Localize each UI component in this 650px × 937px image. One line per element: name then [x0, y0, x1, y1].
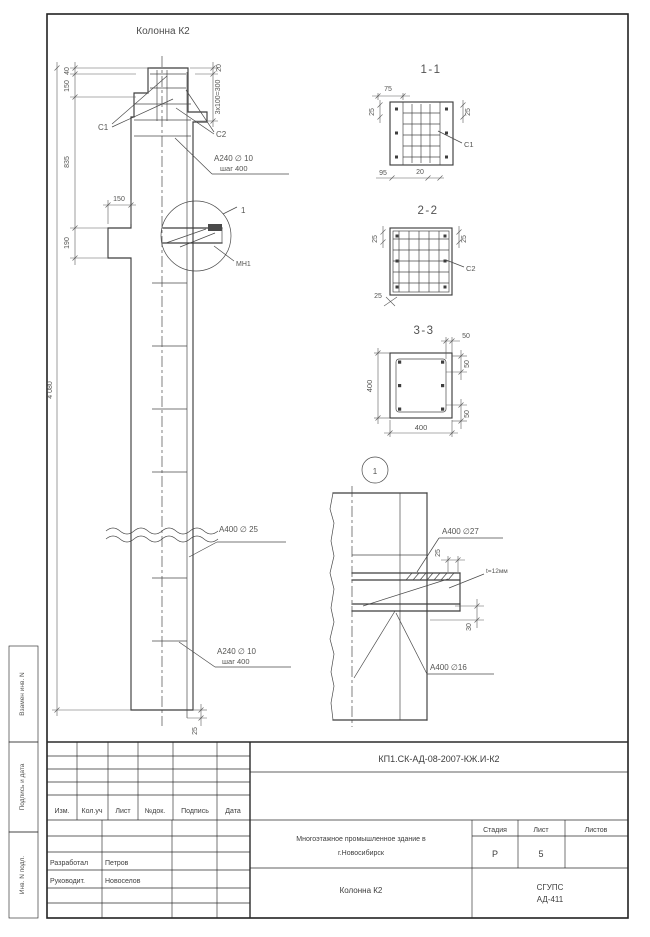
col-list: Лист	[115, 808, 131, 815]
dim-total: 4 080	[47, 381, 54, 399]
col-izm: Изм.	[55, 808, 70, 815]
dim-25b-22: 25	[374, 293, 382, 300]
column-outline	[108, 68, 207, 710]
dim-20: 20	[216, 64, 223, 72]
org-line1: СГУПС	[537, 883, 564, 892]
bottom-dim: 25	[187, 704, 207, 735]
dim-25r-11: 25	[465, 108, 472, 116]
rebar-head-label: А240 ∅ 10	[214, 154, 254, 163]
mesh-c2-label: С2	[466, 264, 476, 273]
dim-400b: 400	[415, 423, 428, 432]
dim-75: 75	[384, 86, 392, 93]
margin-label-replace-inv: Взамен инв. N	[19, 672, 26, 716]
title-block: Изм. Кол.уч Лист №док. Подпись Дата Разр…	[47, 742, 628, 918]
mesh-grid-2-2	[393, 231, 449, 292]
detail-dim-25-label: 25	[435, 549, 442, 557]
sheet-frame	[47, 14, 628, 918]
dim-95: 95	[379, 170, 387, 177]
section-3-3: 3-3 400 400 50	[365, 325, 471, 437]
mesh-c1-label: С1	[464, 140, 474, 149]
section-2-2: 2-2 25 25	[372, 205, 476, 306]
col-data: Дата	[225, 808, 241, 815]
section-3-3-dims: 400 400 50 50 50	[365, 333, 471, 437]
detail-bar-low-label: А400 ∅16	[430, 663, 467, 672]
elevation-dims-left: 40 150 835 190 4 080	[47, 62, 150, 716]
dim-190: 190	[64, 237, 71, 249]
doc-number: КП1.СК-АД-08-2007-КЖ.И-К2	[378, 754, 499, 764]
detail-dim-30-label: 30	[466, 623, 473, 631]
col-podpis: Подпись	[181, 808, 209, 815]
mesh-grid-1-1	[403, 104, 440, 163]
rebar-low-step-label: шаг 400	[222, 657, 250, 666]
c1-label: С1	[98, 123, 109, 132]
dim-25l-22: 25	[372, 235, 379, 243]
dim-50t: 50	[462, 333, 470, 340]
name-supervisor: Новоселов	[105, 878, 141, 885]
dim-25r-22: 25	[461, 235, 468, 243]
dim-835: 835	[64, 156, 71, 168]
section-3-3-title: 3-3	[413, 325, 434, 337]
org-line2: АД-411	[537, 895, 564, 904]
revision-table	[47, 742, 628, 820]
h-sheets: Листов	[585, 827, 608, 834]
section-2-2-title: 2-2	[417, 205, 438, 217]
section-1-1-title: 1-1	[420, 64, 441, 76]
h-sheet: Лист	[533, 827, 549, 834]
margin-boxes: Взамен инв. N Подпись и дата Инв. N подл…	[9, 646, 38, 918]
rebar-head-step-label: шаг 400	[220, 164, 248, 173]
mn1-label: МН1	[236, 261, 251, 268]
object-name: Колонна К2	[340, 886, 383, 895]
detail-break-edge	[330, 493, 334, 720]
dim-50rt: 50	[464, 360, 471, 368]
margin-label-inv-orig: Инв. N подл.	[19, 856, 26, 894]
rebar-main-label: А400 ∅ 25	[219, 525, 259, 534]
sheet-value: 5	[538, 849, 543, 859]
h-stage: Стадия	[483, 827, 507, 834]
detail-ref-label: 1	[241, 206, 246, 215]
col-ndok: №док.	[145, 808, 166, 815]
margin-label-sign-date: Подпись и дата	[19, 763, 26, 810]
c2-label: С2	[216, 130, 227, 139]
detail-1-ref: 1	[373, 467, 378, 476]
detail-dim-25: 25	[435, 549, 465, 572]
detail-bar-top-label: А400 ∅27	[442, 527, 479, 536]
dim-400l: 400	[365, 380, 374, 393]
rebar-dots-3-3	[398, 361, 444, 411]
role-developed: Разработал	[50, 859, 88, 867]
signature-table	[47, 820, 250, 918]
dim-25-bottom: 25	[192, 727, 199, 735]
name-developed: Петров	[105, 860, 129, 867]
project-line1: Многоэтажное промышленное здание в	[296, 836, 426, 843]
role-supervisor: Руководит.	[50, 878, 85, 885]
rebar-low-label: А240 ∅ 10	[217, 647, 257, 656]
project-line2: г.Новосибирск	[338, 849, 385, 857]
console-dim: 150	[103, 196, 136, 224]
elevation-title: Колонна К2	[136, 26, 190, 37]
detail-1: 1 А400 ∅27	[330, 457, 508, 727]
dim-20-11: 20	[416, 169, 424, 176]
dim-50rb: 50	[464, 410, 471, 418]
dim-150-console: 150	[113, 196, 125, 203]
section-1-1: 1-1 75 25	[369, 64, 474, 181]
col-koluch: Кол.уч	[82, 808, 103, 815]
stage-value: Р	[492, 849, 498, 859]
dim-40: 40	[64, 67, 71, 75]
dim-3x100: 3x100=300	[215, 79, 222, 114]
stirrup-lines	[152, 283, 187, 641]
section-2-2-dims: 25 25 25	[372, 226, 468, 306]
drawing-sheet: Взамен инв. N Подпись и дата Инв. N подл…	[0, 0, 650, 937]
detail-circle	[161, 201, 231, 271]
dim-25l-11: 25	[369, 108, 376, 116]
dim-150-head: 150	[64, 80, 71, 92]
column-elevation: Колонна К2	[47, 26, 291, 735]
section-1-1-dims: 75 25 25 95 20	[369, 86, 472, 181]
detail-plate-label: t=12мм	[486, 568, 508, 575]
